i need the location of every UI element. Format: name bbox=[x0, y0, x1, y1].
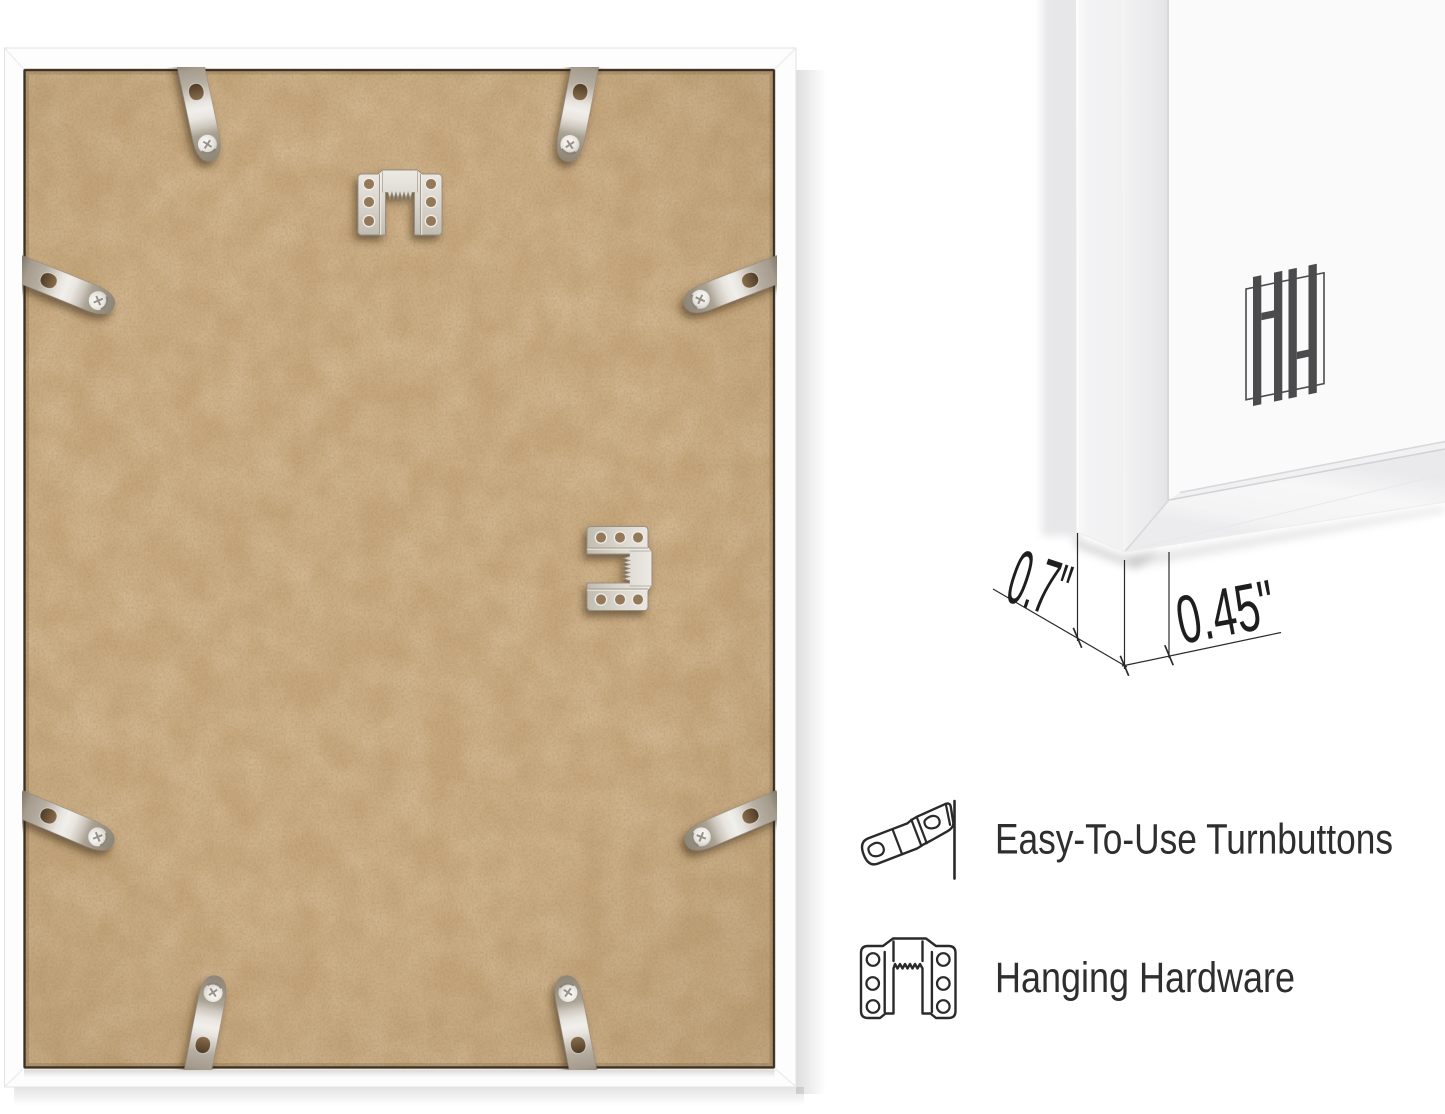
svg-text:Easy-To-Use Turnbuttons: Easy-To-Use Turnbuttons bbox=[995, 817, 1393, 864]
svg-text:Hanging Hardware: Hanging Hardware bbox=[995, 955, 1295, 1002]
